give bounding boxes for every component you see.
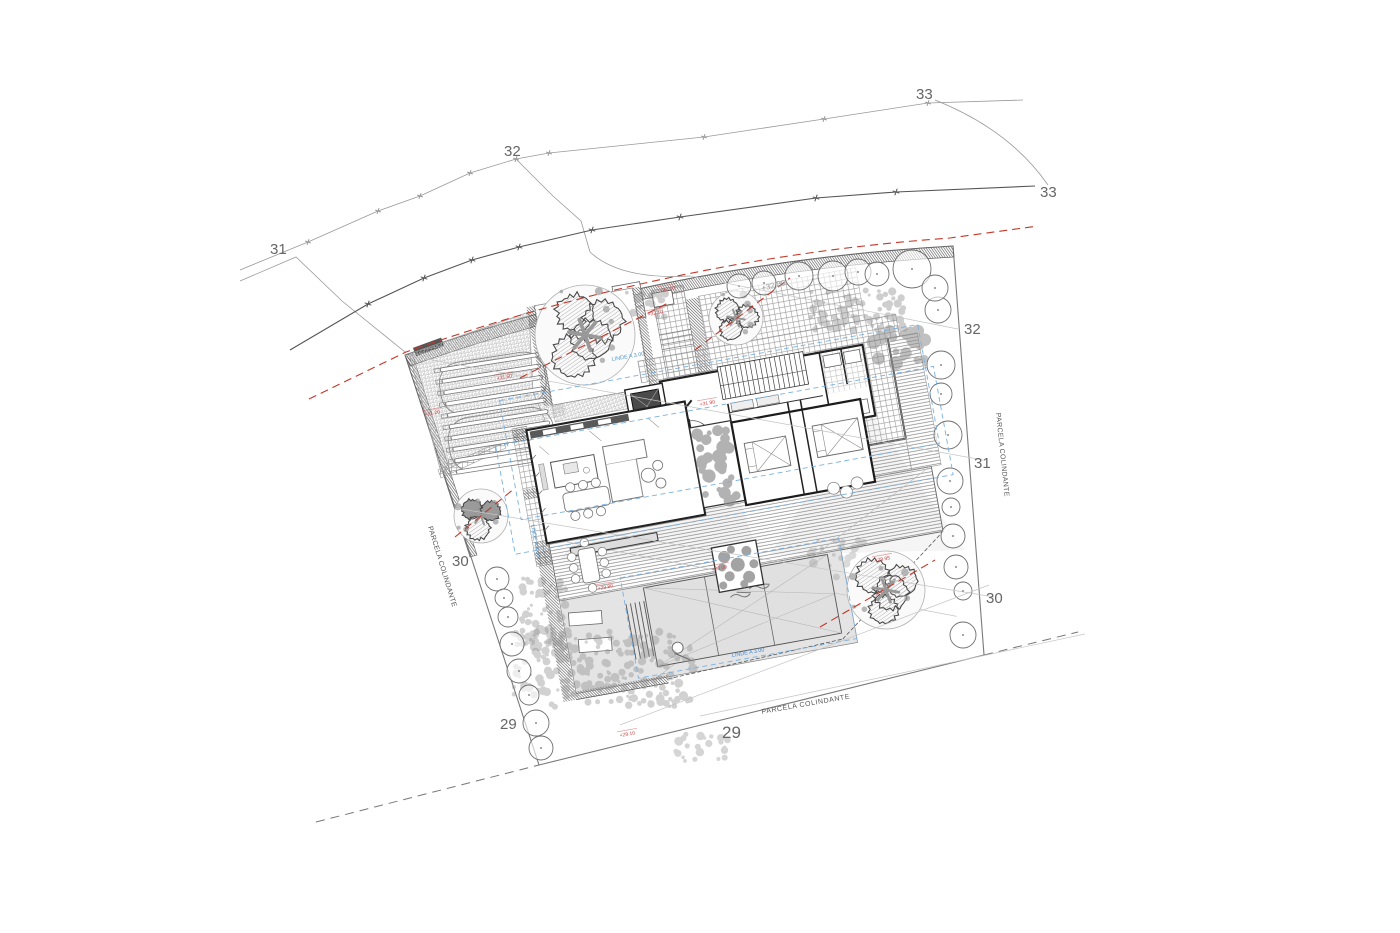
- svg-text:33: 33: [1040, 184, 1057, 201]
- svg-text:32: 32: [504, 143, 521, 160]
- svg-text:30: 30: [986, 590, 1003, 607]
- svg-text:31: 31: [270, 241, 287, 258]
- svg-text:31: 31: [974, 455, 991, 472]
- svg-text:32: 32: [964, 321, 981, 338]
- svg-text:30: 30: [452, 553, 469, 570]
- svg-text:29: 29: [500, 716, 517, 733]
- svg-text:29: 29: [722, 723, 741, 742]
- svg-text:33: 33: [916, 86, 933, 103]
